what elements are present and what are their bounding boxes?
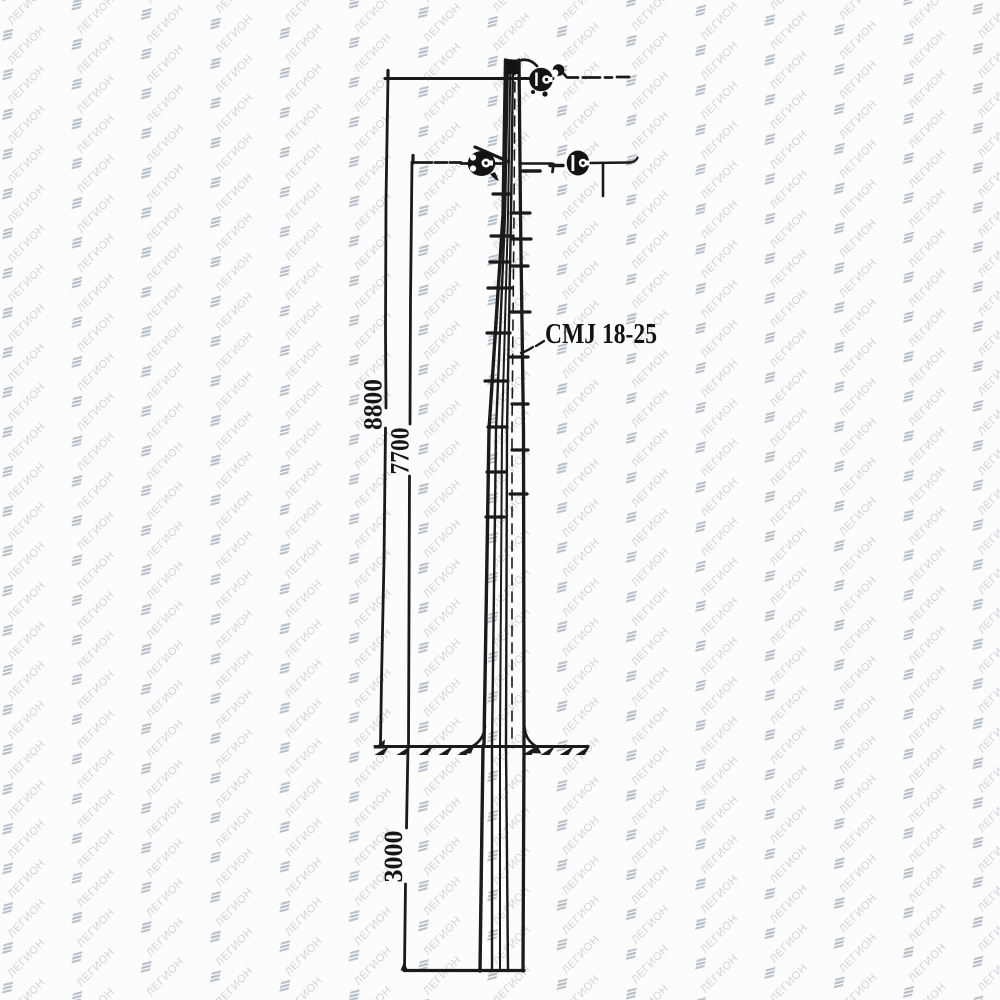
svg-text:3000: 3000: [379, 831, 408, 883]
svg-text:7700: 7700: [386, 428, 415, 475]
svg-text:CMJ 18-25: CMJ 18-25: [545, 319, 657, 350]
svg-text:8800: 8800: [359, 379, 388, 430]
